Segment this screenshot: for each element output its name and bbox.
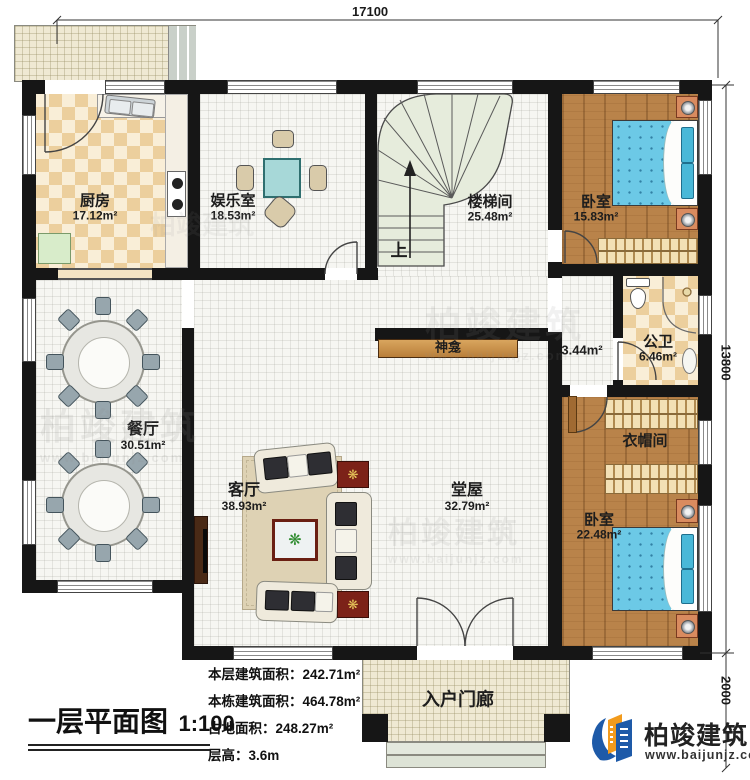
dining-chair (142, 354, 160, 370)
dining-chair (46, 497, 64, 513)
door-opening (613, 338, 623, 380)
room-area: 25.48m² (467, 211, 512, 225)
room-area: 17.12m² (73, 210, 118, 224)
window (417, 80, 513, 94)
fridge (38, 233, 71, 264)
room-name: 卧室 (577, 511, 622, 528)
room-label-bedroom1: 卧室 15.83m² (574, 193, 619, 224)
dimension-height: 13800 (719, 341, 734, 385)
title-scale: 1:100 (178, 711, 234, 736)
page-title: 一层平面图 (28, 706, 168, 737)
window (22, 115, 36, 175)
sink-basin (131, 101, 154, 117)
logo-icon (586, 710, 640, 766)
room-area: 32.79m² (445, 500, 490, 514)
room-label-living: 客厅 38.93m² (222, 482, 267, 514)
logo (586, 710, 640, 771)
room-label-kitchen: 厨房 17.12m² (73, 192, 118, 223)
shrine-label: 神龛 (435, 341, 461, 356)
room-label-stairwell: 楼梯间 25.48m² (467, 193, 512, 224)
window (698, 420, 712, 465)
porch-pillar (362, 714, 388, 742)
window (57, 580, 153, 593)
room-name: 餐厅 (121, 421, 166, 439)
tv-cabinet (194, 516, 208, 584)
burner (172, 178, 183, 189)
window (698, 100, 712, 175)
room-name: 入户门廊 (422, 690, 494, 711)
window (22, 480, 36, 545)
hallway-floor (562, 276, 613, 385)
wardrobe (605, 464, 698, 494)
tv (203, 529, 207, 573)
wall (548, 332, 562, 646)
room-name: 娱乐室 (210, 192, 255, 209)
wardrobe (605, 399, 698, 429)
room-name: 厨房 (73, 192, 118, 209)
room-label-dining: 餐厅 30.51m² (121, 421, 166, 453)
chair (309, 165, 327, 191)
sink-basin (108, 99, 131, 115)
room-area: 30.51m² (121, 439, 166, 453)
wall (548, 262, 562, 278)
room-name: 卧室 (574, 193, 619, 210)
info-value: 3.6m (249, 748, 280, 763)
sofa (326, 492, 372, 590)
toilet-tank (626, 278, 650, 287)
room-name: 客厅 (222, 482, 267, 500)
porch-step (386, 755, 546, 768)
table-top (78, 480, 130, 532)
window (698, 295, 712, 335)
chair (236, 165, 254, 191)
logo-name: 柏竣建筑 (644, 716, 748, 752)
info-value: 248.27m² (276, 721, 334, 736)
table-top (78, 337, 130, 389)
logo-url: www.baijunjz.com (645, 748, 750, 762)
info-label: 本层建筑面积： (208, 667, 303, 682)
nightstand (676, 614, 698, 638)
dining-chair (95, 401, 111, 419)
title-block: 一层平面图 1:100 (28, 700, 235, 751)
floor-plan: ❋ ❋ ❋ (0, 0, 750, 780)
bathroom-sink (682, 348, 697, 374)
door-opening (45, 80, 105, 94)
title-underline (28, 749, 210, 751)
bed (612, 527, 698, 611)
room-name: 神龛 (435, 341, 461, 356)
dining-chair (95, 544, 111, 562)
nightstand (676, 499, 698, 523)
room-name: 衣帽间 (622, 432, 667, 449)
room-area: 38.93m² (222, 500, 267, 514)
room-area: 15.83m² (574, 211, 619, 225)
info-value: 242.71m² (303, 667, 361, 682)
coffee-table: ❋ (272, 519, 318, 561)
door-opening (548, 230, 562, 262)
title-underline (28, 744, 210, 746)
porch-pillar (544, 714, 570, 742)
dining-chair (46, 354, 64, 370)
stove (167, 171, 186, 217)
room-label-hall: 堂屋 32.79m² (445, 482, 490, 514)
room-name: 公卫 (639, 333, 677, 350)
window (593, 80, 680, 94)
burner (172, 199, 183, 210)
bed (612, 120, 698, 206)
window (233, 646, 333, 660)
porch-label: 入户门廊 (422, 690, 494, 711)
chair (272, 130, 294, 148)
room-label-cloakroom: 衣帽间 (622, 432, 667, 449)
room-name: 楼梯间 (467, 193, 512, 210)
wall (548, 94, 562, 230)
game-table (263, 158, 301, 198)
cloakroom-door-leaf (568, 396, 577, 433)
room-label-entertainment: 娱乐室 18.53m² (210, 192, 255, 223)
room-area: 18.53m² (210, 210, 255, 224)
window (227, 80, 337, 94)
wall (182, 328, 194, 646)
room-label-bedroom2: 卧室 22.48m² (577, 511, 622, 542)
wall (365, 94, 377, 268)
sofa (255, 581, 338, 624)
entry-door-opening (417, 646, 513, 660)
window (592, 646, 683, 660)
nightstand (676, 208, 698, 230)
terrace-step (168, 26, 196, 81)
info-value: 464.78m² (303, 694, 361, 709)
wall (607, 385, 712, 397)
window (105, 80, 165, 94)
dimension-porch: 2000 (719, 671, 734, 711)
room-area: 3.44m² (561, 344, 602, 359)
wall (562, 264, 712, 276)
wall (613, 276, 623, 338)
room-area: 6.46m² (639, 351, 677, 365)
side-table: ❋ (337, 461, 369, 488)
door-opening (325, 268, 357, 280)
wardrobe (598, 238, 698, 264)
dining-chair (95, 297, 111, 315)
side-table: ❋ (337, 591, 369, 618)
porch-step (386, 742, 546, 755)
dining-chair (142, 497, 160, 513)
nightstand (676, 96, 698, 118)
passage-opening (548, 278, 562, 332)
up-text: 上 (391, 241, 408, 261)
hallway-area-label: 3.44m² (561, 344, 602, 359)
window (22, 298, 36, 362)
pass-through-counter (58, 268, 152, 280)
window (698, 505, 712, 612)
dining-chair (95, 440, 111, 458)
dimension-width: 17100 (352, 4, 388, 19)
wall (188, 94, 200, 268)
stairs-up-label: 上 (391, 241, 408, 261)
room-area: 22.48m² (577, 529, 622, 543)
room-label-bathroom: 公卫 6.46m² (639, 333, 677, 364)
info-line: 本层建筑面积：242.71m² (208, 663, 360, 683)
room-name: 堂屋 (445, 482, 490, 500)
